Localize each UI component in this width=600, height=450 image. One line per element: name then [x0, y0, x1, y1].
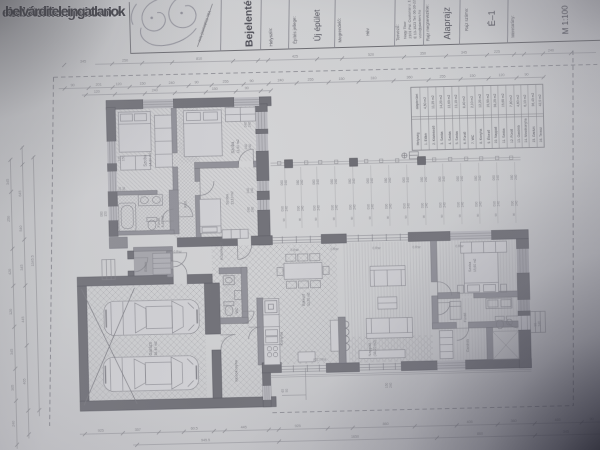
svg-text:240: 240: [335, 205, 339, 211]
svg-text:0.Rsz: 0.Rsz: [331, 247, 340, 251]
svg-text:240: 240: [496, 201, 500, 207]
svg-text:240: 240: [514, 174, 518, 180]
svg-text:240: 240: [12, 421, 16, 427]
svg-text:90: 90: [245, 86, 249, 90]
svg-text:belvárditeleingatlanok: belvárditeleingatlanok: [5, 3, 126, 19]
svg-text:Szoba: Szoba: [225, 193, 229, 205]
svg-text:310: 310: [371, 76, 377, 80]
svg-text:445: 445: [241, 425, 247, 429]
svg-text:945.5: 945.5: [201, 438, 210, 442]
svg-text:Fürdő: Fürdő: [463, 313, 467, 322]
svg-text:360: 360: [511, 419, 517, 423]
svg-text:90: 90: [350, 216, 354, 220]
svg-text:90: 90: [476, 213, 480, 217]
svg-text:520: 520: [368, 53, 374, 57]
svg-text:345: 345: [20, 265, 24, 271]
svg-text:12,60 m2: 12,60 m2: [447, 94, 451, 108]
svg-text:90: 90: [494, 213, 498, 217]
svg-text:1345.5: 1345.5: [31, 255, 35, 266]
svg-text:Nappali: Nappali: [367, 343, 372, 357]
svg-text:90: 90: [590, 417, 594, 421]
svg-text:925: 925: [295, 424, 301, 428]
svg-text:90: 90: [422, 214, 426, 218]
svg-text:925: 925: [98, 429, 104, 433]
svg-text:150: 150: [212, 87, 218, 91]
svg-text:90: 90: [250, 79, 254, 83]
svg-text:90: 90: [512, 212, 516, 216]
svg-text:255: 255: [308, 78, 314, 82]
svg-text:Méretarány:: Méretarány:: [510, 15, 516, 37]
svg-text:357: 357: [135, 428, 141, 432]
svg-text:240: 240: [407, 203, 411, 209]
svg-text:860: 860: [477, 432, 483, 436]
svg-text:345: 345: [563, 430, 569, 434]
svg-text:90: 90: [195, 80, 199, 84]
svg-text:445: 445: [21, 317, 25, 323]
svg-text:240: 240: [248, 122, 252, 128]
svg-text:240: 240: [285, 206, 289, 212]
svg-text:É–1: É–1: [487, 10, 497, 26]
svg-text:240: 240: [406, 177, 410, 183]
svg-text:240: 240: [169, 81, 175, 85]
svg-text:10. Nappali: 10. Nappali: [494, 126, 498, 143]
svg-text:Konyha: Konyha: [278, 331, 283, 345]
svg-text:250: 250: [7, 216, 11, 222]
svg-text:90: 90: [386, 215, 390, 219]
svg-text:Megrendelő:: Megrendelő:: [337, 18, 343, 43]
svg-text:8,40 m2: 8,40 m2: [462, 96, 466, 108]
svg-text:240: 240: [389, 382, 393, 388]
svg-text:90: 90: [440, 214, 444, 218]
svg-text:Étkező: Étkező: [301, 293, 306, 306]
svg-text:Szoba: Szoba: [142, 154, 147, 167]
svg-text:2,10 m2: 2,10 m2: [470, 96, 474, 108]
svg-text:42,0 m2: 42,0 m2: [538, 94, 542, 106]
svg-text:240: 240: [424, 176, 428, 182]
svg-text:12,60 m2: 12,60 m2: [236, 139, 240, 153]
svg-text:4,60 m2: 4,60 m2: [516, 95, 520, 107]
svg-text:13. Gardrób: 13. Gardrób: [517, 125, 521, 143]
svg-text:240: 240: [334, 179, 338, 185]
svg-text:345: 345: [6, 179, 10, 185]
svg-text:0.Rsz: 0.Rsz: [413, 245, 422, 249]
svg-text:240: 240: [496, 175, 500, 181]
svg-text:5. Szoba: 5. Szoba: [455, 131, 459, 144]
svg-text:540: 540: [19, 226, 23, 232]
svg-text:405: 405: [467, 420, 473, 424]
svg-text:120: 120: [9, 309, 13, 315]
svg-text:345: 345: [80, 59, 86, 63]
svg-text:90: 90: [524, 73, 528, 77]
svg-text:12,20 m2: 12,20 m2: [478, 94, 482, 108]
svg-text:Bejelentés: Bejelentés: [242, 0, 255, 47]
svg-text:Nagy Tibor: Nagy Tibor: [403, 21, 408, 39]
svg-text:6. Fürdő: 6. Fürdő: [463, 132, 467, 145]
svg-text:8,40 m2: 8,40 m2: [161, 215, 165, 227]
svg-text:90: 90: [368, 216, 372, 220]
svg-text:255: 255: [439, 75, 445, 79]
svg-text:0.Rsz: 0.Rsz: [373, 246, 382, 250]
svg-text:465: 465: [23, 378, 27, 384]
svg-text:Építés jellege:: Építés jellege:: [292, 16, 298, 44]
svg-text:240: 240: [460, 176, 464, 182]
svg-text:240: 240: [300, 179, 304, 185]
svg-text:90: 90: [282, 218, 286, 222]
svg-text:240: 240: [248, 144, 252, 150]
svg-text:645: 645: [18, 191, 22, 197]
svg-text:(38,20 m2): (38,20 m2): [373, 340, 377, 356]
svg-text:240: 240: [388, 177, 392, 183]
svg-text:240: 240: [478, 201, 482, 207]
svg-text:15. Garázs: 15. Garázs: [532, 126, 536, 143]
svg-text:255: 255: [223, 80, 229, 84]
svg-text:0.Rsz: 0.Rsz: [291, 248, 300, 252]
svg-text:240: 240: [442, 176, 446, 182]
svg-text:Közl.: Közl.: [183, 200, 187, 208]
svg-text:240: 240: [370, 178, 374, 184]
svg-text:150: 150: [121, 156, 125, 162]
svg-text:240: 240: [316, 179, 320, 185]
svg-text:Hév: Hév: [365, 27, 370, 35]
svg-text:240: 240: [250, 188, 254, 194]
svg-text:240: 240: [278, 78, 284, 82]
svg-text:225: 225: [494, 50, 500, 54]
svg-text:11,25 m2: 11,25 m2: [431, 95, 435, 109]
svg-text:240: 240: [389, 203, 393, 209]
svg-text:250: 250: [122, 59, 128, 63]
svg-text:90: 90: [332, 217, 336, 221]
svg-text:240: 240: [425, 202, 429, 208]
svg-text:240: 240: [460, 202, 464, 208]
svg-text:vizio@planterv.hu: vizio@planterv.hu: [418, 10, 423, 38]
svg-text:120: 120: [116, 82, 122, 86]
svg-text:Garázs: Garázs: [148, 342, 153, 356]
svg-text:240: 240: [284, 180, 288, 186]
svg-text:120: 120: [498, 73, 504, 77]
svg-text:305: 305: [11, 385, 15, 391]
svg-text:3. Szoba: 3. Szoba: [440, 131, 444, 144]
svg-text:14,20 m2: 14,20 m2: [439, 95, 443, 109]
svg-text:350: 350: [420, 51, 426, 55]
svg-text:Szoba: Szoba: [468, 262, 472, 272]
svg-text:M 1:100: M 1:100: [561, 5, 571, 35]
svg-text:240: 240: [478, 175, 482, 181]
svg-text:420: 420: [8, 269, 12, 275]
svg-text:90: 90: [458, 214, 462, 218]
svg-text:36,40 m2: 36,40 m2: [154, 341, 158, 355]
svg-text:0.Rsz: 0.Rsz: [174, 250, 183, 254]
svg-text:0.Rsz: 0.Rsz: [455, 244, 464, 248]
svg-text:(OZ.I%)a: (OZ.I%)a: [313, 357, 326, 361]
svg-text:Közlekedő: Közlekedő: [219, 242, 223, 260]
svg-text:201: 201: [96, 83, 102, 87]
svg-text:90: 90: [314, 217, 318, 221]
svg-text:Új épület: Új épület: [313, 9, 323, 42]
svg-text:240: 240: [442, 202, 446, 208]
svg-text:240: 240: [352, 178, 356, 184]
svg-text:240: 240: [353, 204, 357, 210]
svg-text:Helyszín:: Helyszín:: [268, 28, 274, 47]
svg-text:10,50 m2: 10,50 m2: [307, 292, 311, 306]
svg-text:360: 360: [407, 75, 413, 79]
svg-text:9. Étkező: 9. Étkező: [486, 130, 491, 144]
svg-text:120: 120: [94, 90, 100, 94]
svg-text:150: 150: [339, 77, 345, 81]
svg-text:90: 90: [285, 389, 289, 393]
svg-text:Rajz megnevezése:: Rajz megnevezése:: [424, 4, 430, 41]
svg-text:WC: WC: [235, 307, 239, 313]
svg-text:240: 240: [251, 207, 255, 213]
svg-text:alapterület: alapterület: [415, 94, 419, 110]
svg-text:14. Mosókonyha: 14. Mosókonyha: [524, 118, 529, 142]
svg-text:38,20 m2: 38,20 m2: [493, 93, 497, 107]
svg-text:425: 425: [292, 55, 298, 59]
svg-text:1650: 1650: [351, 435, 359, 439]
svg-text:14,20 m2: 14,20 m2: [148, 152, 152, 166]
svg-text:8. Konyha: 8. Konyha: [479, 129, 483, 144]
svg-text:13,10 m2: 13,10 m2: [230, 191, 234, 205]
svg-text:240: 240: [548, 48, 554, 52]
svg-text:Szoba: Szoba: [230, 141, 235, 154]
svg-text:Előtér: Előtér: [144, 261, 148, 272]
svg-text:240: 240: [317, 205, 321, 211]
svg-text:150: 150: [469, 74, 475, 78]
svg-text:90: 90: [298, 217, 302, 221]
svg-text:240: 240: [537, 321, 541, 327]
svg-text:16. Terasz: 16. Terasz: [539, 127, 543, 143]
svg-text:Tervező:: Tervező:: [395, 24, 400, 41]
svg-text:6,10 m2: 6,10 m2: [523, 95, 527, 107]
svg-text:Gardrób: Gardrób: [466, 339, 470, 352]
svg-text:15,60 m2: 15,60 m2: [473, 258, 477, 272]
svg-text:4. Szoba: 4. Szoba: [448, 131, 452, 144]
svg-text:150: 150: [140, 82, 146, 86]
svg-text:860: 860: [383, 422, 389, 426]
svg-text:240: 240: [152, 88, 158, 92]
svg-text:10,50 m2: 10,50 m2: [486, 94, 490, 108]
svg-text:240: 240: [301, 205, 305, 211]
svg-text:810: 810: [196, 57, 202, 61]
svg-text:240: 240: [371, 204, 375, 210]
svg-text:150: 150: [122, 187, 126, 193]
svg-text:36,40 m2: 36,40 m2: [531, 93, 535, 107]
svg-text:1. Előtér: 1. Előtér: [424, 132, 428, 145]
svg-text:90: 90: [404, 215, 408, 219]
svg-text:7. WC: 7. WC: [471, 134, 475, 144]
svg-text:90: 90: [71, 83, 75, 87]
svg-text:12. Fürdő: 12. Fürdő: [510, 129, 514, 143]
svg-text:345: 345: [10, 349, 14, 355]
svg-text:Mosókonyha: Mosókonyha: [234, 359, 239, 382]
svg-text:60.5: 60.5: [191, 426, 198, 430]
svg-text:Alaprajz: Alaprajz: [442, 6, 453, 39]
svg-text:Rajz száma:: Rajz száma:: [464, 8, 470, 31]
svg-text:7,80 m2: 7,80 m2: [509, 95, 513, 107]
svg-text:Vác Kisközmű terv: Vác Kisközmű terv: [197, 10, 212, 43]
svg-text:13,10 m2: 13,10 m2: [454, 94, 458, 108]
svg-text:4,50 m2: 4,50 m2: [423, 97, 427, 109]
svg-text:150: 150: [104, 211, 108, 217]
svg-text:2. Közlekedő: 2. Közlekedő: [432, 126, 436, 145]
svg-text:345: 345: [461, 51, 467, 55]
svg-text:240: 240: [514, 200, 518, 206]
svg-text:465: 465: [555, 418, 561, 422]
svg-text:15,60 m2: 15,60 m2: [501, 93, 505, 107]
svg-text:11. Szoba: 11. Szoba: [502, 128, 506, 143]
svg-text:Helyiség: Helyiség: [416, 132, 420, 145]
